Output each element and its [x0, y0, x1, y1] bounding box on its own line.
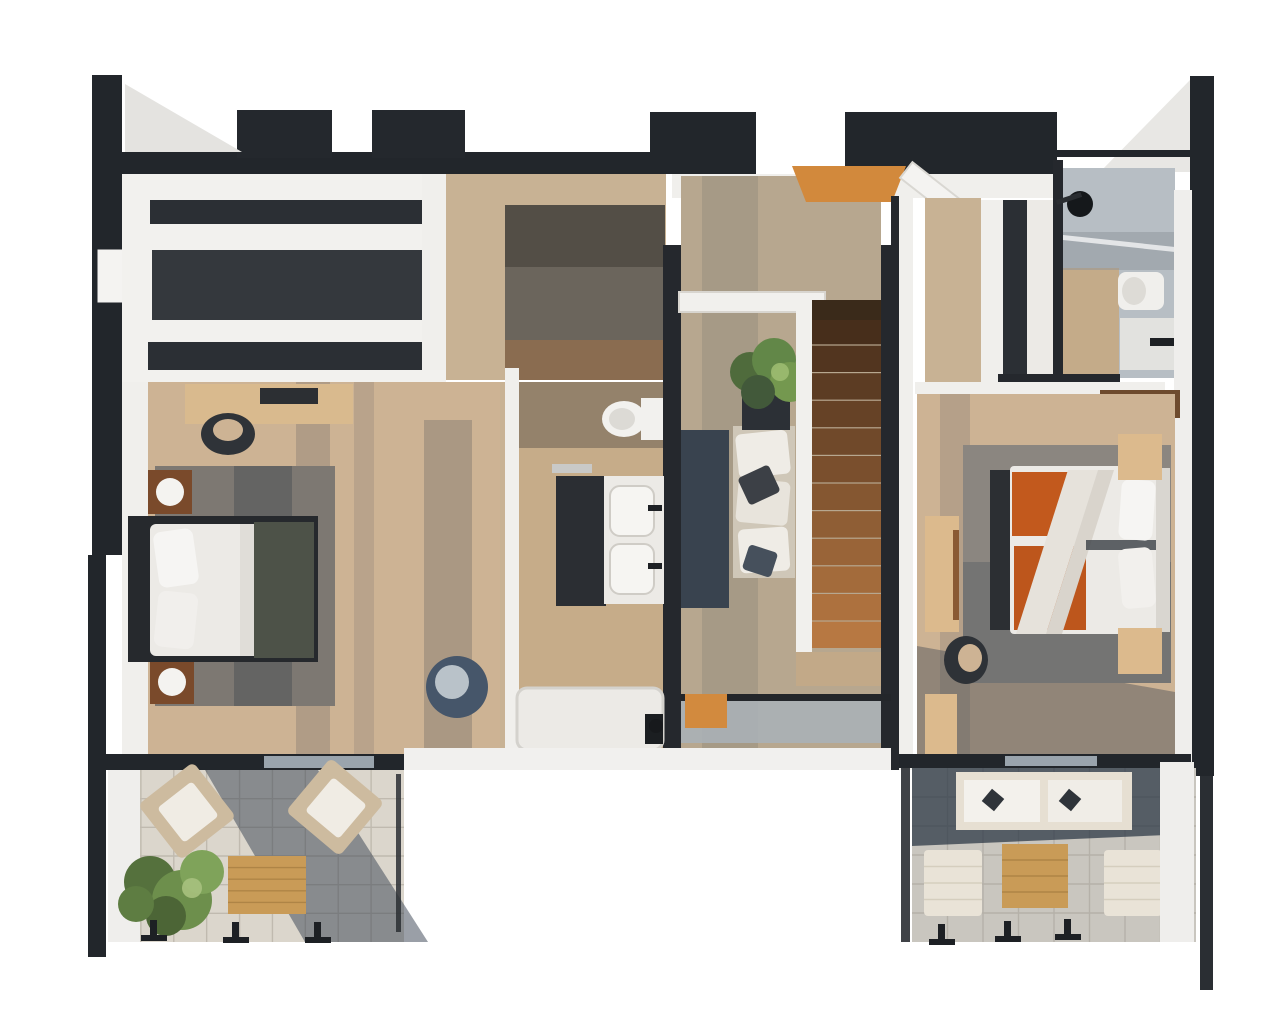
floor-plan-rendering: [0, 0, 1280, 1024]
wardrobe-column: [1003, 200, 1027, 378]
nightstand2-top: [1118, 434, 1162, 480]
plant-foliage-5: [118, 886, 154, 922]
outer-wall-right-lower: [1200, 776, 1213, 990]
sink-faucet-1: [648, 505, 662, 511]
wall-bath1-living: [663, 245, 681, 770]
bath2-west-wall: [1053, 160, 1063, 378]
stair-bottom-landing: [796, 652, 882, 686]
bed1-pillow-b: [153, 590, 199, 650]
wall-corridor-west-line: [891, 196, 899, 770]
terrace1-east-rail: [396, 774, 401, 932]
bed2-north-line: [998, 374, 1120, 382]
door-knob: [649, 719, 663, 733]
corridor-west-white: [899, 196, 913, 770]
lamp1-bottom: [158, 668, 186, 696]
cren-block-1: [237, 110, 332, 158]
living-plant-highlight: [771, 363, 789, 381]
bed2-pillow-b: [1117, 547, 1156, 610]
bath2-toilet-seat: [1122, 277, 1146, 305]
south-wall-white: [404, 748, 900, 770]
bed1-duvet-fold: [240, 524, 256, 656]
closet-strip-1: [150, 200, 422, 224]
bed2-runner: [1086, 540, 1162, 550]
bed1-pillow-a: [152, 527, 199, 588]
entry-shadow-dark: [505, 205, 665, 267]
desk1-laptop: [260, 388, 318, 404]
entry-mat-wood: [792, 166, 906, 202]
outer-wall-right: [1190, 76, 1214, 776]
floor-shadow-streak-2: [354, 382, 374, 754]
wardrobe-interior: [1027, 200, 1053, 378]
dresser2-edge: [953, 530, 959, 620]
bath2-floor-tan: [1063, 268, 1119, 378]
bed1-blanket: [254, 522, 314, 658]
terrace2-east-white: [1160, 762, 1194, 942]
bath2-north-wall-line: [1057, 150, 1190, 157]
cren-block-2: [372, 110, 465, 158]
cren-block-4: [845, 112, 1057, 174]
vanity1-counter: [556, 476, 606, 606]
living-rug: [681, 430, 729, 608]
outer-wall-left-upper: [92, 75, 122, 555]
living-plant-foliage-4: [741, 375, 775, 409]
bed2-pillow-a: [1118, 479, 1156, 541]
closet-east-wall: [422, 174, 446, 382]
entry-floor-brown: [505, 340, 665, 380]
bed2-bench: [990, 470, 1012, 630]
chair2-inner: [958, 644, 982, 672]
lamp1-top: [156, 478, 184, 506]
bathtub: [517, 688, 663, 750]
towel-bar: [552, 464, 592, 473]
sink-basin-1: [610, 486, 654, 536]
toilet1-seat: [609, 408, 635, 430]
top-right-wedge-wall: [1100, 80, 1190, 172]
nightstand2-bottom: [1118, 628, 1162, 674]
glass-door-right: [1005, 756, 1097, 766]
bed2-headboard: [1156, 468, 1170, 632]
glass-door-left: [264, 756, 374, 768]
corridor-floor: [925, 198, 981, 390]
bedroom1-north-wall: [146, 370, 446, 384]
sink-basin-2: [610, 544, 654, 594]
terrace1-table: [228, 856, 306, 914]
east-inner-white-wall: [1174, 190, 1192, 770]
desk1-chair-inner: [213, 419, 243, 441]
plant-highlight: [182, 878, 202, 898]
corner-shade: [125, 84, 242, 152]
south-cabinet: [685, 694, 727, 728]
pouf-center: [435, 665, 469, 699]
floor-plan-page: [0, 0, 1280, 1024]
shelf2: [925, 694, 957, 756]
terrace2-west-rail: [901, 768, 910, 942]
corridor-east-white: [981, 200, 1003, 388]
bath2-faucet: [1150, 338, 1174, 346]
cren-block-3: [650, 112, 756, 174]
sink-faucet-2: [648, 563, 662, 569]
stair-stringer: [796, 296, 812, 652]
closet-strip-2: [152, 250, 422, 320]
stair-top-landing: [812, 300, 882, 320]
